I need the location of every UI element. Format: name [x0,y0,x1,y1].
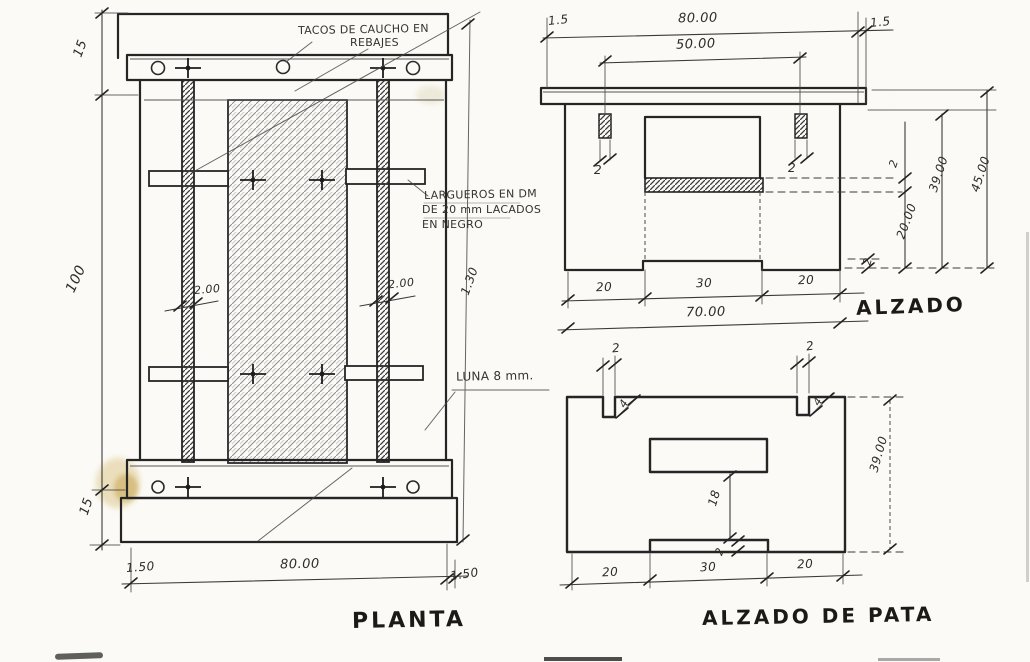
dim-alzado-total-width: 70.00 [686,306,726,320]
dim-planta-overhang-right: 1.50 [449,566,479,582]
dim-planta-overhang-left: 1.50 [126,560,155,574]
pata-title: ALZADO DE PATA [702,604,935,628]
note-largueros-line3: EN NEGRO [422,219,483,230]
note-tacos-line1: TACOS DE CAUCHO EN [298,23,429,36]
alzado-stretcher [645,178,763,192]
dim-alzado-span: 30 [696,277,713,290]
note-largueros-line2: DE 20 mm LACADOS [422,204,541,215]
alzado-title: ALZADO [856,294,966,318]
note-largueros-line1: LARGUEROS EN DM [424,188,537,201]
dim-planta-bar-left: 2.00 [194,283,221,296]
dim-alzado-width: 80.00 [678,12,718,26]
dim-pata-notch-left: 2 [611,342,620,355]
dim-pata-notch-right: 2 [805,339,815,352]
note-tacos-line2: REBAJES [350,37,399,48]
planta-glass-panel [228,100,347,463]
technical-drawing-scan: TACOS DE CAUCHO EN REBAJES LARGUEROS EN … [0,0,1030,662]
note-luna: LUNA 8 mm. [456,369,534,382]
dim-alzado-leg-right: 20 [798,274,815,287]
pata-outline [567,397,845,552]
dim-pata-leg-right: 20 [797,558,814,571]
dim-alzado-inner-span: 50.00 [676,37,716,51]
dim-pata-leg-left: 20 [602,566,619,579]
planta-title: PLANTA [352,609,466,633]
dim-alzado-tenon-left: 2 [594,164,602,176]
dim-planta-bar-right: 2.00 [387,277,415,291]
dim-alzado-overhang-right: 1.5 [869,15,891,29]
dim-alzado-overhang-left: 1.5 [547,13,569,27]
dim-alzado-tenon-right: 2 [788,162,796,174]
hidden-dashed-verticals [645,192,890,549]
dim-planta-width: 80.00 [280,558,320,572]
dim-alzado-leg-left: 20 [596,281,613,294]
hidden-dashed-lines [766,178,994,552]
dim-pata-span: 30 [700,561,717,574]
